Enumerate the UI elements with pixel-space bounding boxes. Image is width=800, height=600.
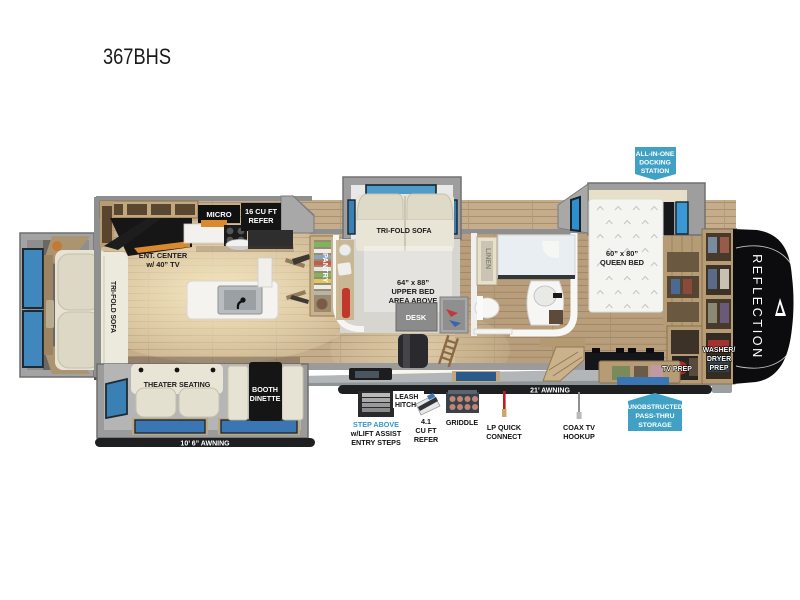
svg-text:GRIDDLE: GRIDDLE [446, 418, 479, 427]
svg-text:DESK: DESK [406, 313, 427, 322]
svg-text:ENTRY STEPS: ENTRY STEPS [351, 438, 401, 447]
svg-text:64” x 88”: 64” x 88” [397, 278, 429, 287]
svg-text:CONNECT: CONNECT [486, 432, 522, 441]
svg-text:WASHER/: WASHER/ [703, 347, 736, 354]
svg-text:LEASH: LEASH [395, 394, 418, 401]
svg-text:21’ AWNING: 21’ AWNING [530, 388, 570, 395]
svg-text:HITCH: HITCH [395, 402, 416, 409]
svg-text:QUEEN BED: QUEEN BED [600, 258, 645, 267]
svg-text:w/ 40” TV: w/ 40” TV [145, 260, 179, 269]
svg-text:PASS-THRU: PASS-THRU [635, 413, 674, 420]
svg-text:10’ 6” AWNING: 10’ 6” AWNING [180, 441, 230, 448]
svg-text:DOCKING: DOCKING [639, 160, 671, 167]
svg-text:ENT. CENTER: ENT. CENTER [139, 251, 188, 260]
svg-text:BOOTH: BOOTH [252, 385, 278, 394]
svg-text:THEATER SEATING: THEATER SEATING [144, 380, 211, 389]
svg-text:TRI-FOLD SOFA: TRI-FOLD SOFA [109, 281, 116, 333]
svg-text:367BHS: 367BHS [103, 44, 171, 69]
svg-text:TV PREP: TV PREP [662, 366, 692, 373]
svg-text:LINEN: LINEN [484, 248, 491, 269]
svg-text:STEP ABOVE: STEP ABOVE [353, 420, 399, 429]
svg-text:STATION: STATION [641, 168, 670, 175]
svg-text:REFER: REFER [248, 216, 274, 225]
svg-text:MICRO: MICRO [206, 210, 231, 219]
svg-text:COAX TV: COAX TV [563, 423, 595, 432]
svg-text:PREP: PREP [709, 365, 728, 372]
svg-text:DRYER: DRYER [707, 356, 731, 363]
svg-text:ALL-IN-ONE: ALL-IN-ONE [636, 151, 675, 158]
svg-text:REFER: REFER [414, 435, 439, 444]
svg-text:REFLECTION: REFLECTION [750, 254, 764, 360]
svg-text:UPPER BED: UPPER BED [391, 287, 435, 296]
svg-text:60” x 80”: 60” x 80” [606, 249, 638, 258]
svg-text:w/LIFT ASSIST: w/LIFT ASSIST [350, 429, 402, 438]
svg-text:LP QUICK: LP QUICK [487, 423, 522, 432]
svg-text:DINETTE: DINETTE [250, 394, 281, 403]
svg-text:CU FT: CU FT [415, 426, 437, 435]
svg-text:STORAGE: STORAGE [638, 422, 672, 429]
svg-text:UNOBSTRUCTED: UNOBSTRUCTED [627, 404, 683, 411]
svg-text:TRI-FOLD SOFA: TRI-FOLD SOFA [376, 226, 431, 235]
svg-text:PANTRY: PANTRY [321, 253, 330, 283]
svg-text:HOOKUP: HOOKUP [563, 432, 595, 441]
svg-text:16 CU FT: 16 CU FT [245, 207, 278, 216]
svg-text:4.1: 4.1 [421, 417, 431, 426]
